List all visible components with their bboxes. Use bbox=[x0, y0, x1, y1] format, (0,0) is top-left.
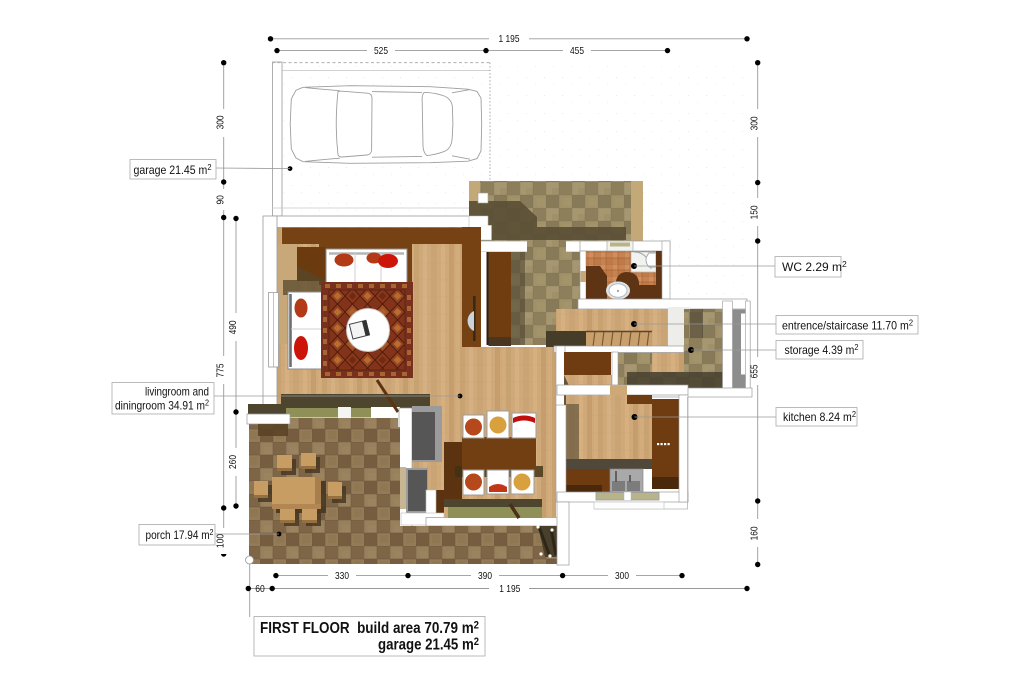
svg-text:300: 300 bbox=[749, 116, 761, 130]
svg-text:150: 150 bbox=[749, 205, 761, 219]
svg-text:60: 60 bbox=[255, 583, 265, 595]
svg-text:garage 21.45 m2: garage 21.45 m2 bbox=[378, 636, 479, 654]
svg-text:FIRST FLOOR build area 70.79: FIRST FLOOR build area 70.79 m2 bbox=[260, 620, 479, 638]
svg-text:porch 17.94 m2: porch 17.94 m2 bbox=[146, 527, 214, 542]
svg-text:kitchen 8.24 m2: kitchen 8.24 m2 bbox=[783, 409, 856, 424]
svg-text:entrence/staircase 11.70 m2: entrence/staircase 11.70 m2 bbox=[782, 317, 913, 332]
svg-text:300: 300 bbox=[615, 570, 629, 582]
svg-text:garage 21.45 m2: garage 21.45 m2 bbox=[134, 162, 212, 177]
svg-text:390: 390 bbox=[478, 570, 492, 582]
svg-text:diningroom 34.91 m2: diningroom 34.91 m2 bbox=[115, 398, 209, 413]
svg-text:90: 90 bbox=[215, 195, 227, 205]
svg-text:260: 260 bbox=[227, 455, 239, 469]
svg-text:1 195: 1 195 bbox=[499, 33, 520, 45]
svg-text:455: 455 bbox=[570, 45, 584, 57]
svg-text:100: 100 bbox=[215, 534, 227, 548]
svg-text:storage 4.39 m2: storage 4.39 m2 bbox=[785, 342, 859, 357]
svg-text:160: 160 bbox=[749, 526, 761, 540]
svg-text:1 195: 1 195 bbox=[499, 583, 520, 595]
svg-text:livingroom and: livingroom and bbox=[145, 385, 209, 399]
svg-text:655: 655 bbox=[749, 364, 761, 378]
svg-text:490: 490 bbox=[227, 320, 239, 334]
svg-text:300: 300 bbox=[215, 115, 227, 129]
svg-text:525: 525 bbox=[374, 45, 388, 57]
svg-text:330: 330 bbox=[335, 570, 349, 582]
svg-text:775: 775 bbox=[215, 363, 227, 377]
svg-text:WC 2.29 m2: WC 2.29 m2 bbox=[782, 259, 847, 274]
